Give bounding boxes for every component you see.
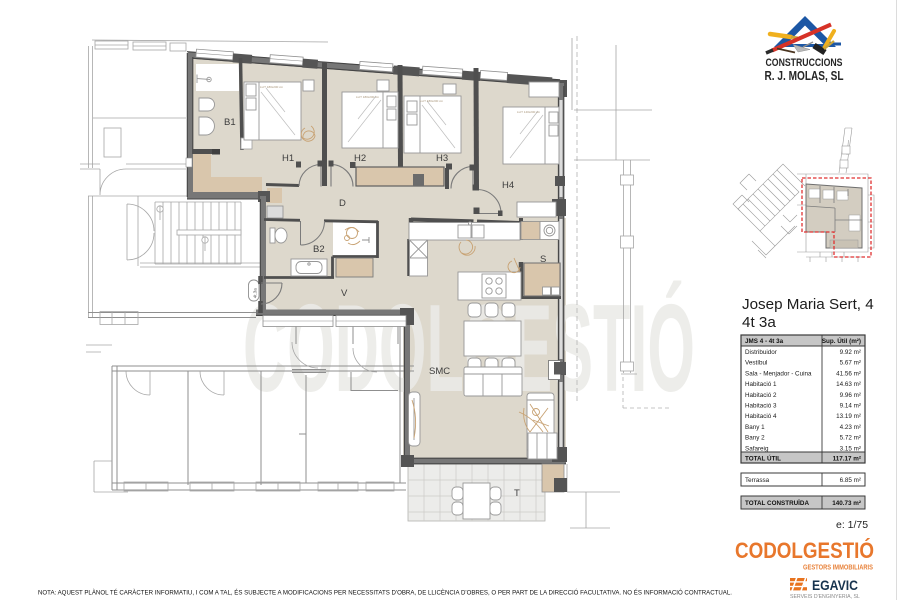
svg-text:5.72 m²: 5.72 m² <box>840 435 861 442</box>
svg-text:4t 3a: 4t 3a <box>742 314 776 331</box>
svg-text:GESTORS IMMOBILIARIS: GESTORS IMMOBILIARIS <box>803 563 873 572</box>
svg-text:Sup. Útil (m²): Sup. Útil (m²) <box>822 336 861 345</box>
svg-text:LLIT 180x200 cm: LLIT 180x200 cm <box>356 95 380 99</box>
svg-text:R. J. MOLAS, SL: R. J. MOLAS, SL <box>765 68 844 83</box>
svg-text:41.56 m²: 41.56 m² <box>836 370 861 377</box>
svg-text:3.15 m²: 3.15 m² <box>840 445 861 452</box>
svg-text:9.92 m²: 9.92 m² <box>840 349 861 356</box>
svg-text:Habitació 2: Habitació 2 <box>745 392 777 399</box>
svg-text:Bany 1: Bany 1 <box>745 424 765 431</box>
svg-text:SMC: SMC <box>429 366 450 377</box>
svg-text:JMS 4 - 4t 3a: JMS 4 - 4t 3a <box>745 338 784 345</box>
svg-text:H1: H1 <box>282 153 294 164</box>
svg-text:9.96 m²: 9.96 m² <box>840 392 861 399</box>
svg-text:Habitació 1: Habitació 1 <box>745 381 777 388</box>
svg-text:Vestíbul: Vestíbul <box>745 360 767 367</box>
svg-text:Sala - Menjador - Cuina: Sala - Menjador - Cuina <box>745 370 812 377</box>
svg-text:NOTA: AQUEST PLÀNOL TÉ CARÀCTE: NOTA: AQUEST PLÀNOL TÉ CARÀCTER INFORMAT… <box>38 588 732 597</box>
svg-text:Habitació 4: Habitació 4 <box>745 413 777 420</box>
svg-text:H4: H4 <box>502 180 514 191</box>
svg-text:LLIT 140x200 cm: LLIT 140x200 cm <box>517 110 541 114</box>
svg-text:9.14 m²: 9.14 m² <box>840 403 861 410</box>
svg-text:T: T <box>514 488 520 499</box>
svg-text:140.73 m²: 140.73 m² <box>832 500 861 507</box>
svg-text:LLIT 180x200 cm: LLIT 180x200 cm <box>260 85 284 89</box>
svg-text:B2: B2 <box>313 244 325 255</box>
svg-text:14.63 m²: 14.63 m² <box>836 381 861 388</box>
svg-text:EGAVIC: EGAVIC <box>812 578 858 593</box>
svg-text:Safareig: Safareig <box>745 445 769 452</box>
svg-text:117.17 m²: 117.17 m² <box>833 456 861 463</box>
svg-text:CODOLGESTIÓ: CODOLGESTIÓ <box>735 538 874 563</box>
svg-text:SERVEIS D'ENGINYERIA, SL: SERVEIS D'ENGINYERIA, SL <box>790 594 860 600</box>
svg-text:4t.3a: 4t.3a <box>252 288 257 299</box>
svg-text:5.67 m²: 5.67 m² <box>840 360 861 367</box>
svg-text:TOTAL ÚTIL: TOTAL ÚTIL <box>745 454 781 463</box>
svg-text:H2: H2 <box>354 153 366 164</box>
svg-text:H3: H3 <box>436 153 448 164</box>
svg-text:D: D <box>339 198 346 209</box>
svg-text:S: S <box>540 254 546 265</box>
svg-text:e: 1/75: e: 1/75 <box>836 519 868 531</box>
svg-text:13.19 m²: 13.19 m² <box>836 413 861 420</box>
svg-text:Habitació 3: Habitació 3 <box>745 403 777 410</box>
svg-text:Distribuidor: Distribuidor <box>745 349 777 356</box>
svg-text:LLIT 180x200 cm: LLIT 180x200 cm <box>420 99 444 103</box>
svg-text:Bany 2: Bany 2 <box>745 435 765 442</box>
svg-text:V: V <box>341 288 348 299</box>
svg-text:B1: B1 <box>224 117 236 128</box>
svg-text:Josep Maria Sert, 4: Josep Maria Sert, 4 <box>742 296 874 313</box>
svg-text:Terrassa: Terrassa <box>745 477 770 484</box>
svg-text:TOTAL CONSTRUÏDA: TOTAL CONSTRUÏDA <box>745 499 809 507</box>
svg-text:6.85 m²: 6.85 m² <box>840 477 861 484</box>
svg-text:4.23 m²: 4.23 m² <box>840 424 861 431</box>
